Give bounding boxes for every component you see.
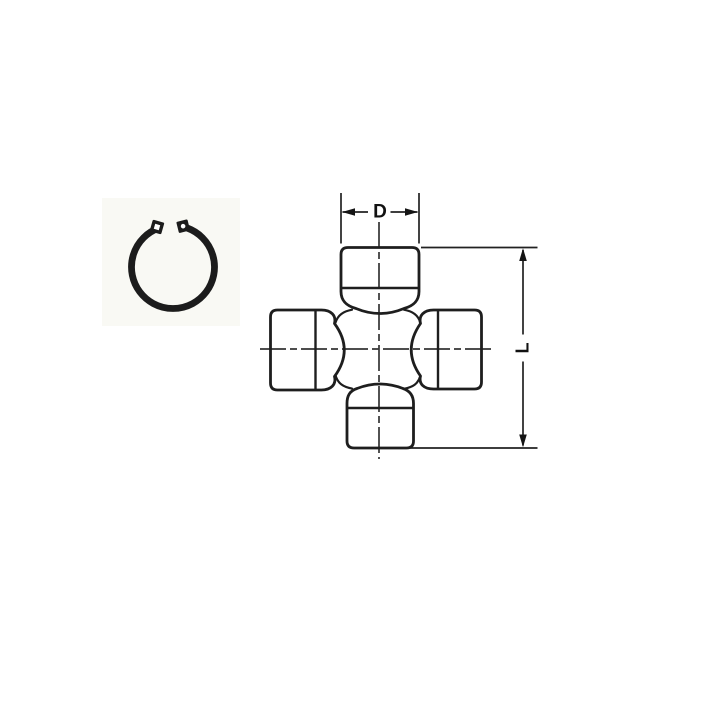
arrow-down-icon [519,435,527,448]
arrow-left-icon [342,208,355,215]
snap-ring-figure [102,198,240,326]
dimension-l: L [407,248,538,449]
arrow-up-icon [519,248,527,261]
bearing-cup-left [271,310,345,390]
cup-outline [271,310,345,390]
dimension-d: D [341,193,419,244]
bearing-cup-bottom [347,384,414,448]
center-fillet-bottom-right [404,376,420,389]
dimension-d-label: D [373,202,387,223]
center-fillet-bottom-left [336,376,353,389]
center-fillet-top-left [336,310,353,323]
technical-drawing-svg: D L [0,0,720,720]
drawing-canvas: D L [0,0,720,720]
ujoint-cross-figure: D L [260,193,538,459]
dimension-l-label: L [513,343,533,354]
arrow-right-icon [405,208,418,215]
cup-outline [347,384,414,448]
center-fillet-top-right [404,310,420,323]
cup-outline [341,248,419,314]
bearing-cup-top [341,248,419,314]
